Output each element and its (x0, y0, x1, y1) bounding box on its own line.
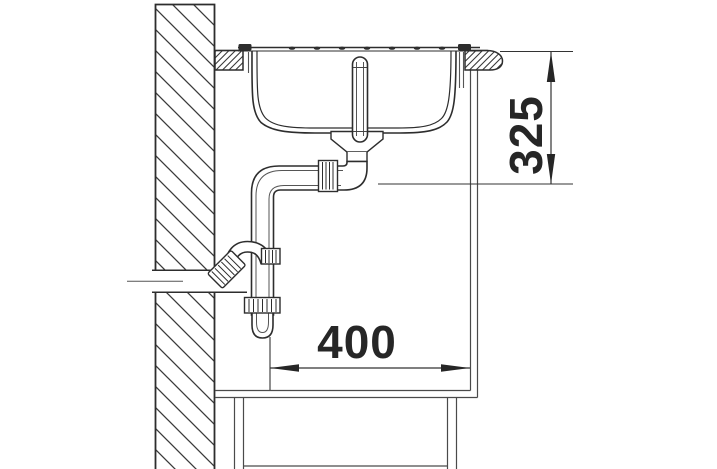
sink-section-drawing: 400 325 (0, 0, 717, 469)
dimension-label-325: 325 (503, 65, 549, 205)
drawing-canvas (0, 0, 717, 469)
arrow-left-icon (270, 364, 299, 372)
dimension-label-400: 400 (287, 319, 427, 365)
drain-pipe-run (252, 162, 368, 316)
rim-clamp-left (239, 44, 252, 51)
plinth-left-panel (235, 398, 244, 469)
mounting-clip-right (460, 52, 464, 88)
wall-section (156, 5, 215, 469)
overflow-standpipe (353, 57, 368, 142)
sink-rim (215, 44, 488, 51)
countertop-left-section (215, 51, 243, 71)
arrow-right-icon (441, 364, 470, 372)
plinth-right-panel (448, 398, 457, 469)
countertop-right-section (465, 51, 503, 71)
rim-clamp-right (458, 44, 471, 51)
trap-large-nut (245, 298, 281, 314)
trap-small-nut (262, 249, 281, 265)
trap-bottom-cap (252, 313, 273, 338)
pipe-coupling (319, 161, 338, 192)
